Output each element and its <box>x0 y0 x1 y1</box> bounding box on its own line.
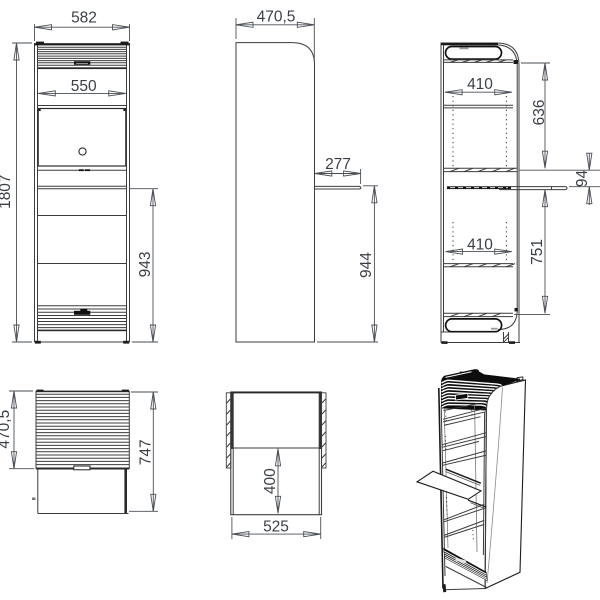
svg-text:525: 525 <box>263 519 289 536</box>
svg-text:747: 747 <box>138 439 155 465</box>
svg-text:1807: 1807 <box>0 174 14 208</box>
svg-text:470,5: 470,5 <box>257 9 296 26</box>
svg-text:277: 277 <box>325 156 351 173</box>
svg-text:400: 400 <box>262 468 279 494</box>
svg-text:410: 410 <box>467 236 493 253</box>
svg-text:751: 751 <box>529 239 546 265</box>
svg-text:550: 550 <box>71 78 97 95</box>
svg-text:943: 943 <box>137 251 154 277</box>
svg-text:410: 410 <box>467 76 493 93</box>
svg-text:94: 94 <box>574 170 591 188</box>
svg-text:470,5: 470,5 <box>0 410 13 449</box>
svg-text:582: 582 <box>71 10 97 27</box>
svg-text:944: 944 <box>358 252 375 278</box>
